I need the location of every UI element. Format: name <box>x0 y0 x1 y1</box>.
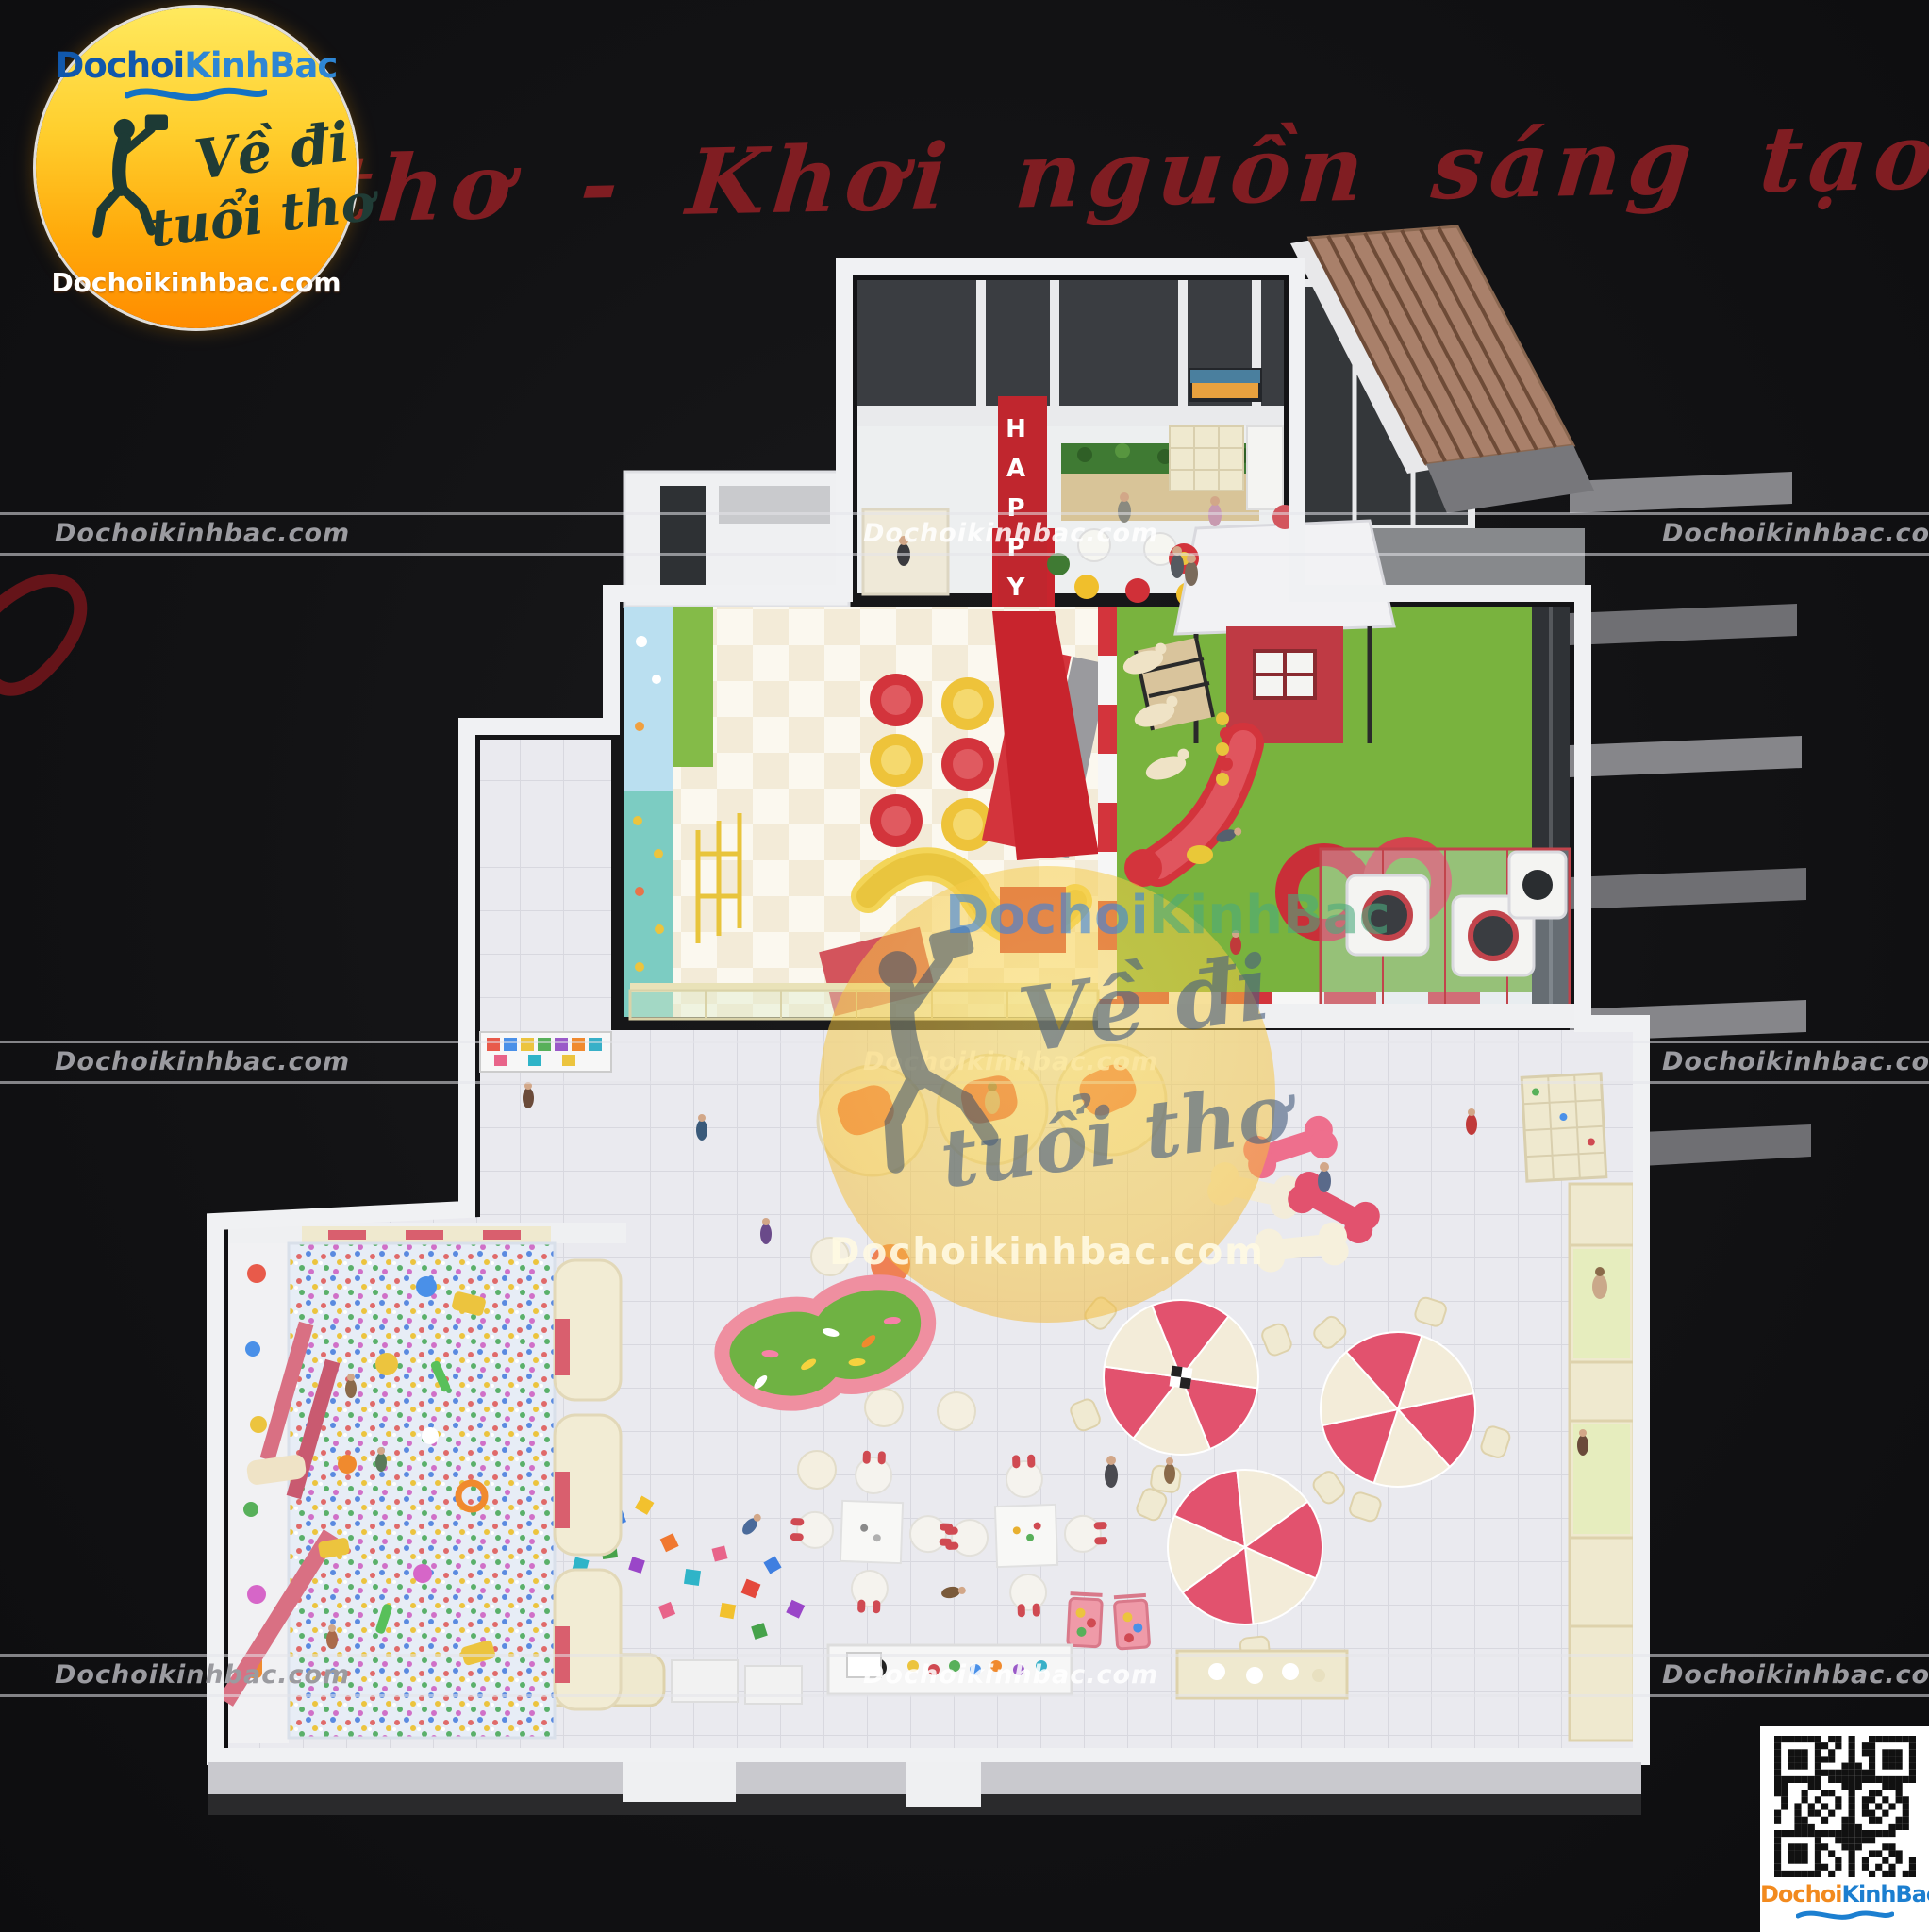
watermark-url: Dochoikinhbac.com <box>1662 1047 1929 1076</box>
wave-icon <box>125 87 267 104</box>
qr-card: DochoiKinhBac <box>1760 1726 1929 1932</box>
watermark-url: Dochoikinhbac.com <box>55 1660 350 1690</box>
watermark-url: Dochoikinhbac.com <box>863 519 1158 548</box>
framed-picture <box>1190 370 1260 400</box>
watermark-url: Dochoikinhbac.com <box>55 1047 350 1076</box>
watermark-url: Dochoikinhbac.com <box>1662 1660 1929 1690</box>
grass-strip <box>673 607 713 767</box>
logo-brand-kinhbac: KinhBac <box>184 45 337 86</box>
pit-sofas <box>555 1260 621 1709</box>
render-stage: i thơ - Khơi nguồn sáng tạo <box>0 0 1929 1932</box>
reading-nook-cushion <box>1573 1249 1630 1358</box>
watermark-url: Dochoikinhbac.com <box>863 1660 1158 1690</box>
center-watermark-url: Dochoikinhbac.com <box>819 1231 1275 1274</box>
brand-kinhbac: KinhBac <box>1149 885 1390 946</box>
watermark-line <box>0 1654 1929 1657</box>
background-script-fragment <box>0 580 80 690</box>
wave-icon <box>1796 1909 1894 1923</box>
toy-duck <box>1187 845 1213 864</box>
watermark-line <box>0 1694 1929 1697</box>
watermark-line <box>0 553 1929 556</box>
watermark-band: Dochoikinhbac.com Dochoikinhbac.com Doch… <box>0 512 1929 569</box>
qr-brand-kinhbac: KinhBac <box>1841 1881 1929 1907</box>
watermark-url: Dochoikinhbac.com <box>55 519 350 548</box>
person <box>1318 1162 1331 1192</box>
sky-mural-wall <box>624 607 673 791</box>
qr-brand-dochoi: Dochoi <box>1760 1881 1841 1907</box>
center-watermark-script1: Về đi <box>1013 936 1277 1074</box>
watermark-band: Dochoikinhbac.com Dochoikinhbac.com Doch… <box>0 1654 1929 1710</box>
dryer-box <box>1509 852 1566 918</box>
center-brand-watermark: DochoiKinhBac <box>945 885 1390 946</box>
logo-brand-name: DochoiKinhBac <box>36 45 357 86</box>
watermark-url: Dochoikinhbac.com <box>1662 519 1929 548</box>
qr-brand-label: DochoiKinhBac <box>1760 1881 1929 1907</box>
qr-code <box>1774 1736 1916 1877</box>
logo-brand-dochoi: Dochoi <box>56 45 185 86</box>
watermark-line <box>0 512 1929 515</box>
person <box>1105 1456 1118 1488</box>
brand-dochoi: Dochoi <box>945 885 1149 946</box>
brand-logo-badge: DochoiKinhBac Về đi tuổi thơ Dochoikinhb… <box>36 8 357 328</box>
logo-website: Dochoikinhbac.com <box>36 267 357 298</box>
bottom-outer-wall <box>208 1762 1641 1815</box>
